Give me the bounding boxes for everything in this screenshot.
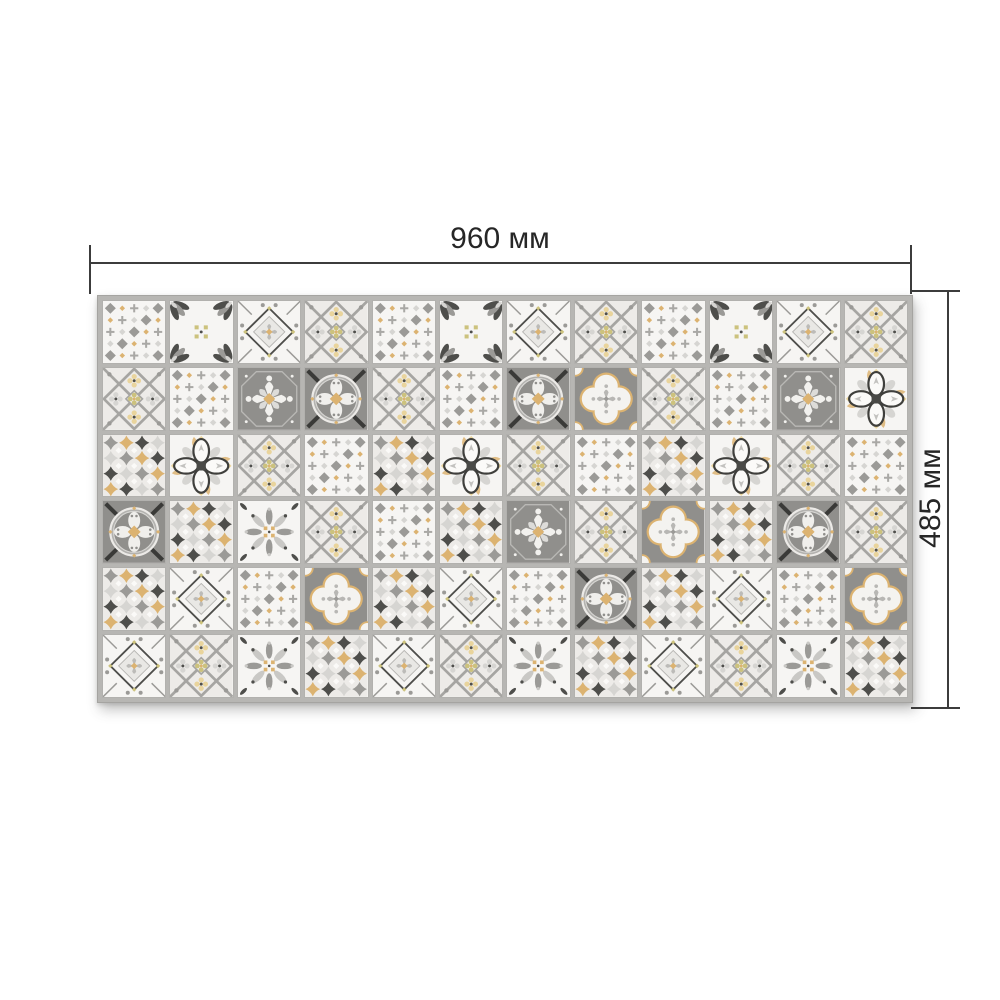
tile-diamond-dots: [776, 567, 840, 631]
width-dimension-label: 960 мм: [350, 222, 650, 256]
tile-scroll-cross: [776, 634, 840, 698]
tile-diamond-frame: [102, 634, 166, 698]
tile-lattice-rosette: [169, 634, 233, 698]
tile-circle-medallion: [506, 367, 570, 431]
tile-clover-flower: [439, 434, 503, 498]
tile-diamond-dots: [574, 434, 638, 498]
product-dimension-diagram: 960 мм 485 мм: [0, 0, 1000, 1000]
tile-mosaic-stars: [641, 567, 705, 631]
tile-diamond-frame: [641, 634, 705, 698]
tile-diamond-dots: [304, 434, 368, 498]
tile-diamond-frame: [237, 300, 301, 364]
tile-rosette-medallion: [776, 367, 840, 431]
tile-diamond-dots: [169, 367, 233, 431]
tile-quatrefoil-medallion: [641, 500, 705, 564]
tile-circle-medallion: [574, 567, 638, 631]
tile-mosaic-stars: [372, 567, 436, 631]
tile-diamond-frame: [709, 567, 773, 631]
tile-lattice-rosette: [237, 434, 301, 498]
tile-diamond-dots: [102, 300, 166, 364]
tile-diamond-dots: [641, 300, 705, 364]
tile-circle-medallion: [102, 500, 166, 564]
tile-corner-scrolls: [439, 300, 503, 364]
tile-mosaic-stars: [102, 567, 166, 631]
tile-lattice-rosette: [372, 367, 436, 431]
tile-scroll-cross: [237, 634, 301, 698]
height-dimension-tick-top: [911, 290, 960, 292]
tile-diamond-dots: [709, 367, 773, 431]
tile-lattice-rosette: [641, 367, 705, 431]
tile-diamond-frame: [169, 567, 233, 631]
tile-rosette-medallion: [237, 367, 301, 431]
tile-clover-flower: [709, 434, 773, 498]
tile-diamond-dots: [372, 300, 436, 364]
width-dimension-tick-left: [89, 245, 91, 294]
tile-mosaic-stars: [304, 634, 368, 698]
tile-lattice-rosette: [574, 500, 638, 564]
tile-lattice-rosette: [844, 500, 908, 564]
tile-diamond-frame: [439, 567, 503, 631]
tile-quatrefoil-medallion: [304, 567, 368, 631]
tile-mosaic-stars: [641, 434, 705, 498]
tile-mosaic-stars: [102, 434, 166, 498]
tile-quatrefoil-medallion: [574, 367, 638, 431]
tile-lattice-rosette: [439, 634, 503, 698]
tile-diamond-frame: [776, 300, 840, 364]
tile-diamond-dots: [439, 367, 503, 431]
tile-clover-flower: [844, 367, 908, 431]
height-dimension-label: 485 мм: [914, 348, 948, 648]
tile-lattice-rosette: [844, 300, 908, 364]
tile-mosaic-stars: [709, 500, 773, 564]
tile-lattice-rosette: [506, 434, 570, 498]
tile-lattice-rosette: [776, 434, 840, 498]
tile-clover-flower: [169, 434, 233, 498]
tile-mosaic-stars: [169, 500, 233, 564]
width-dimension-line: [90, 262, 911, 264]
tile-mosaic-stars: [844, 634, 908, 698]
tile-diamond-dots: [237, 567, 301, 631]
tile-scroll-cross: [237, 500, 301, 564]
tile-scroll-cross: [506, 634, 570, 698]
tile-mosaic-stars: [439, 500, 503, 564]
tile-panel: [97, 295, 913, 703]
tile-diamond-frame: [372, 634, 436, 698]
tile-corner-scrolls: [709, 300, 773, 364]
tile-mosaic-stars: [372, 434, 436, 498]
tile-diamond-frame: [506, 300, 570, 364]
height-dimension-tick-bottom: [911, 707, 960, 709]
tile-circle-medallion: [776, 500, 840, 564]
tile-rosette-medallion: [506, 500, 570, 564]
tile-mosaic-stars: [574, 634, 638, 698]
tile-lattice-rosette: [709, 634, 773, 698]
tile-lattice-rosette: [304, 500, 368, 564]
tile-corner-scrolls: [169, 300, 233, 364]
tile-lattice-rosette: [574, 300, 638, 364]
tile-quatrefoil-medallion: [844, 567, 908, 631]
tile-lattice-rosette: [304, 300, 368, 364]
tile-diamond-dots: [844, 434, 908, 498]
tile-circle-medallion: [304, 367, 368, 431]
tile-diamond-dots: [372, 500, 436, 564]
tile-diamond-dots: [506, 567, 570, 631]
width-dimension-tick-right: [910, 245, 912, 294]
tile-lattice-rosette: [102, 367, 166, 431]
